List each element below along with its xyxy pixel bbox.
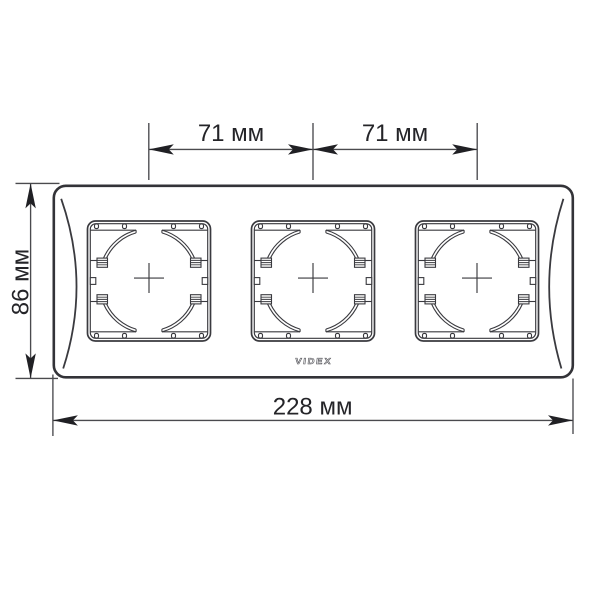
svg-text:71 мм: 71 мм bbox=[198, 120, 264, 147]
svg-text:VIDEX: VIDEX bbox=[295, 357, 333, 366]
svg-text:86 мм: 86 мм bbox=[7, 249, 34, 315]
svg-text:228 мм: 228 мм bbox=[273, 394, 353, 421]
svg-text:71 мм: 71 мм bbox=[362, 120, 428, 147]
